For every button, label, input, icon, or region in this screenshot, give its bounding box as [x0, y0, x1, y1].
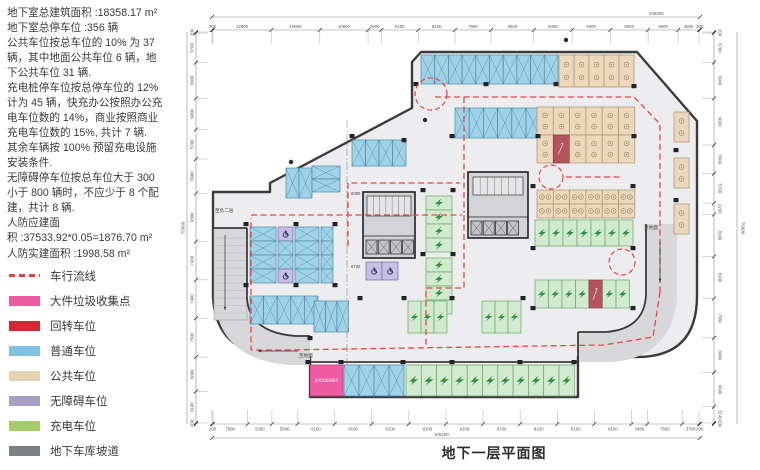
column-marker — [521, 296, 526, 300]
parking-stall — [537, 107, 553, 135]
column-marker — [333, 222, 338, 226]
parking-stall — [619, 55, 634, 87]
dim-value: 7900 — [468, 24, 478, 29]
column-marker — [631, 246, 636, 250]
dim-value: 5300 — [255, 427, 265, 432]
column-marker — [450, 360, 455, 364]
column-marker — [244, 222, 249, 226]
column-marker — [402, 296, 407, 300]
column-marker — [402, 138, 407, 142]
dim-value: 8100 — [497, 427, 507, 432]
column-marker — [294, 222, 299, 226]
column-marker — [401, 360, 406, 364]
dim-value: 200 — [190, 28, 195, 36]
parking-stall — [553, 107, 569, 135]
building-core — [468, 172, 528, 238]
parking-stall — [570, 135, 586, 163]
column-marker — [518, 360, 523, 364]
dim-value: 5700 — [718, 43, 723, 53]
column-marker — [632, 84, 637, 88]
parking-stall — [589, 55, 604, 87]
dim-value: 8100 — [718, 273, 723, 283]
column-marker — [333, 283, 338, 287]
dim-value: 6000 — [190, 109, 195, 119]
column-marker — [531, 306, 536, 310]
column-marker — [339, 360, 344, 364]
dim-value: 7500 — [190, 332, 195, 342]
parking-stall — [570, 107, 586, 135]
dim-value: 5500 — [718, 155, 723, 165]
dim-string-left — [187, 30, 208, 426]
parking-stall — [619, 135, 635, 163]
dim-value: 10600 — [338, 24, 351, 29]
dim-string-right — [702, 30, 737, 426]
parking-stall — [674, 112, 689, 142]
dim-value: 8100 — [348, 427, 358, 432]
dim-value: 6600 — [718, 385, 723, 395]
dim-value: 8100 — [395, 24, 405, 29]
column-marker — [350, 134, 355, 138]
dim-value: 3480 — [635, 427, 645, 432]
parking-stall — [602, 135, 618, 163]
parking-stall — [619, 107, 635, 135]
parking-stall — [586, 135, 602, 163]
dim-value: 7580 — [660, 427, 670, 432]
dim-value: 8100 — [608, 427, 618, 432]
parking-stall — [674, 158, 689, 188]
building-core — [363, 192, 415, 258]
dim-value: 2900 — [370, 24, 380, 29]
dim-value: 6100 — [190, 402, 195, 412]
column-marker — [306, 360, 311, 364]
dim-value: 9300 — [190, 212, 195, 222]
dim-value: 3140 — [718, 410, 723, 420]
ramp-to-b2 — [214, 228, 247, 320]
dim-value: 6600 — [190, 171, 195, 181]
dim-total: 106200 — [649, 11, 665, 16]
dim-string-bottom — [210, 410, 702, 440]
dim-value: 2200 — [718, 204, 723, 214]
plan-annotation: 6730 — [351, 264, 361, 269]
column-marker — [294, 283, 299, 287]
dim-total: 75600 — [181, 221, 186, 234]
dim-value: 200 — [718, 420, 723, 428]
dim-value: 6600 — [658, 24, 668, 29]
column-marker — [421, 188, 426, 192]
dim-total: 75600 — [741, 222, 746, 235]
parking-stall — [589, 280, 603, 308]
dim-value: 200 — [696, 24, 704, 29]
dim-value: 8100 — [718, 231, 723, 241]
point-marker — [289, 160, 293, 164]
column-marker — [572, 360, 577, 364]
drawing-title: 地下一层平面图 — [404, 443, 584, 463]
dim-value: 12800 — [236, 24, 249, 29]
dim-value: 200 — [190, 419, 195, 427]
dim-value: 8100 — [423, 427, 433, 432]
parking-stall — [559, 55, 574, 87]
dim-value: 7580 — [718, 313, 723, 323]
parking-stall — [574, 55, 589, 87]
dim-value: 8100 — [534, 427, 544, 432]
dim-total: 106200 — [434, 432, 450, 437]
parking-stall — [604, 55, 619, 87]
floor-plan-sheet: { "info_panel": { "text": "地下室总建筑面积 :183… — [0, 0, 760, 470]
dim-value: 5700 — [190, 139, 195, 149]
column-marker — [450, 134, 455, 138]
dim-value: 5580 — [280, 427, 290, 432]
parking-stall — [586, 107, 602, 135]
column-marker — [531, 184, 536, 188]
column-marker — [451, 188, 456, 192]
parking-stall — [674, 204, 689, 234]
column-marker — [674, 198, 679, 202]
dim-value: 200 — [209, 427, 217, 432]
column-marker — [631, 306, 636, 310]
dim-value: 6680 — [718, 350, 723, 360]
plan-annotation: 至地面 — [644, 224, 658, 231]
point-marker — [423, 118, 427, 122]
plan-annotation: 6080 — [351, 191, 361, 196]
dim-value: 200 — [718, 29, 723, 37]
column-marker — [308, 336, 313, 340]
column-marker — [674, 148, 679, 152]
dim-value: 6900 — [718, 76, 723, 86]
dim-value: 9400 — [508, 24, 518, 29]
dim-value: 7400 — [190, 294, 195, 304]
dim-value: 8100 — [460, 427, 470, 432]
column-marker — [631, 184, 636, 188]
dim-value: 200 — [209, 24, 217, 29]
column-marker — [358, 296, 363, 300]
dim-value: 8100 — [571, 427, 581, 432]
parking-stall — [553, 135, 569, 163]
dim-value: 8100 — [311, 427, 321, 432]
dim-value: 6600 — [190, 369, 195, 379]
floor-plan-drawing: 大件垃圾收集点至负二层至地面至地面60806730200128001068010… — [0, 0, 760, 470]
dim-value: 5700 — [190, 42, 195, 52]
dim-value: 6900 — [190, 75, 195, 85]
column-marker — [450, 296, 455, 300]
column-marker — [244, 283, 249, 287]
parking-stall — [537, 135, 553, 163]
column-marker — [536, 134, 541, 138]
parking-stall — [602, 107, 618, 135]
dim-value: 10680 — [290, 24, 303, 29]
dim-value: 8100 — [385, 427, 395, 432]
dim-value: 200 — [696, 427, 704, 432]
garbage-point-label: 大件垃圾收集点 — [315, 378, 339, 383]
column-marker — [632, 134, 637, 138]
dim-value: 8400 — [586, 24, 596, 29]
point-marker — [564, 38, 568, 42]
column-marker — [484, 82, 489, 86]
dim-value: 5700 — [718, 184, 723, 194]
plan-annotation: 至地面 — [299, 352, 313, 359]
dim-value: 7580 — [225, 427, 235, 432]
dim-value: 9000 — [718, 117, 723, 127]
dim-value: 7400 — [190, 255, 195, 265]
column-marker — [554, 82, 559, 86]
dim-value: 8100 — [432, 24, 442, 29]
plan-annotation: 至负二层 — [215, 207, 234, 214]
column-marker — [531, 246, 536, 250]
dim-value: 8300 — [624, 24, 634, 29]
column-marker — [451, 252, 456, 256]
dim-value: 3700 — [686, 427, 696, 432]
dim-value: 4600 — [684, 24, 694, 29]
dim-string-top — [210, 15, 702, 44]
column-marker — [421, 252, 426, 256]
dim-value: 8400 — [548, 24, 558, 29]
